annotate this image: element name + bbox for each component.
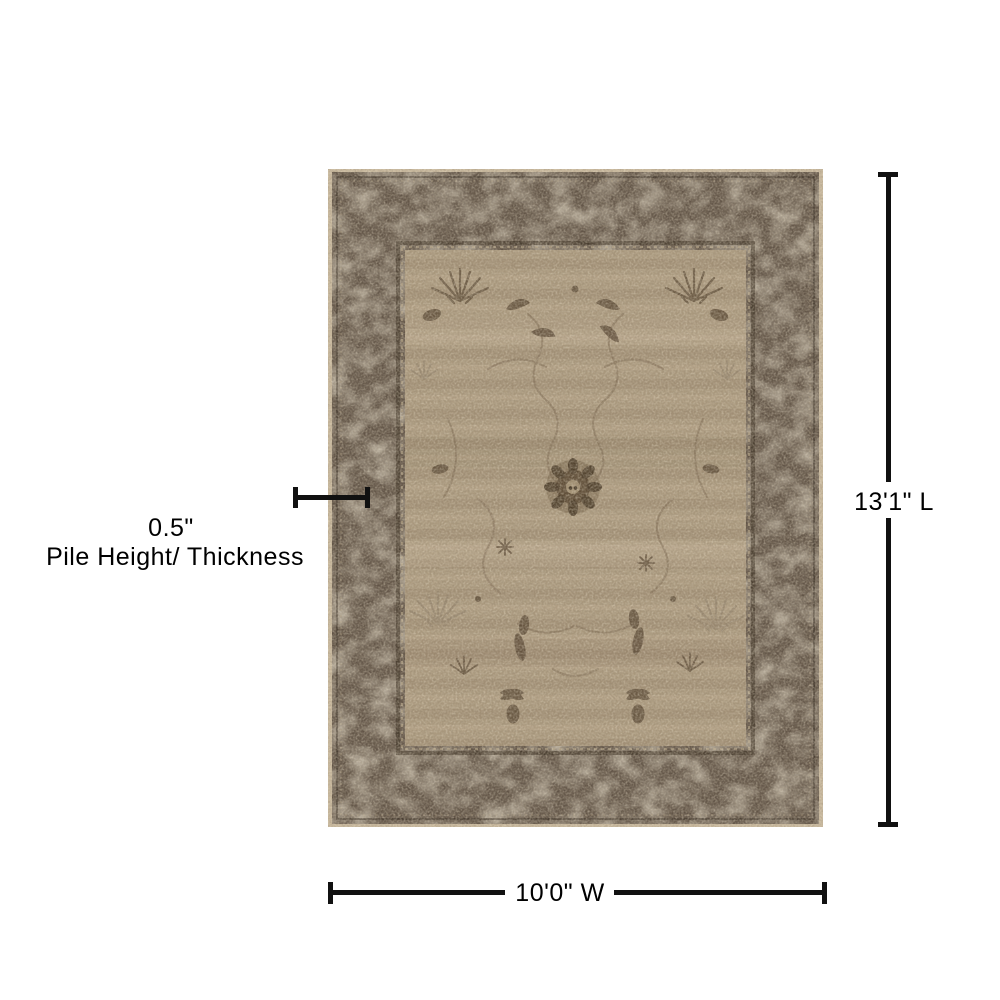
length-label: 13'1" L bbox=[838, 488, 950, 516]
length-dim-lower-segment bbox=[886, 518, 891, 825]
width-dim-left-segment bbox=[330, 890, 505, 895]
pile-height-caption: Pile Height/ Thickness bbox=[45, 543, 305, 571]
width-dim-right-segment bbox=[614, 890, 825, 895]
rug-photo-graphic bbox=[328, 169, 823, 827]
width-label: 10'0" W bbox=[502, 879, 618, 907]
length-dim-upper-segment bbox=[886, 174, 891, 482]
rug-dimensions-figure: 13'1" L 10'0" W 0.5" Pile Height/ Thickn… bbox=[0, 0, 1000, 1000]
length-dim-bottom-cap bbox=[878, 822, 898, 827]
pile-height-line bbox=[293, 487, 370, 508]
pile-dim-right-cap bbox=[365, 487, 370, 508]
pile-height-value: 0.5" bbox=[71, 514, 271, 542]
rug-image bbox=[328, 169, 823, 827]
pile-dim-segment bbox=[295, 495, 368, 500]
width-dim-right-cap bbox=[822, 882, 827, 904]
